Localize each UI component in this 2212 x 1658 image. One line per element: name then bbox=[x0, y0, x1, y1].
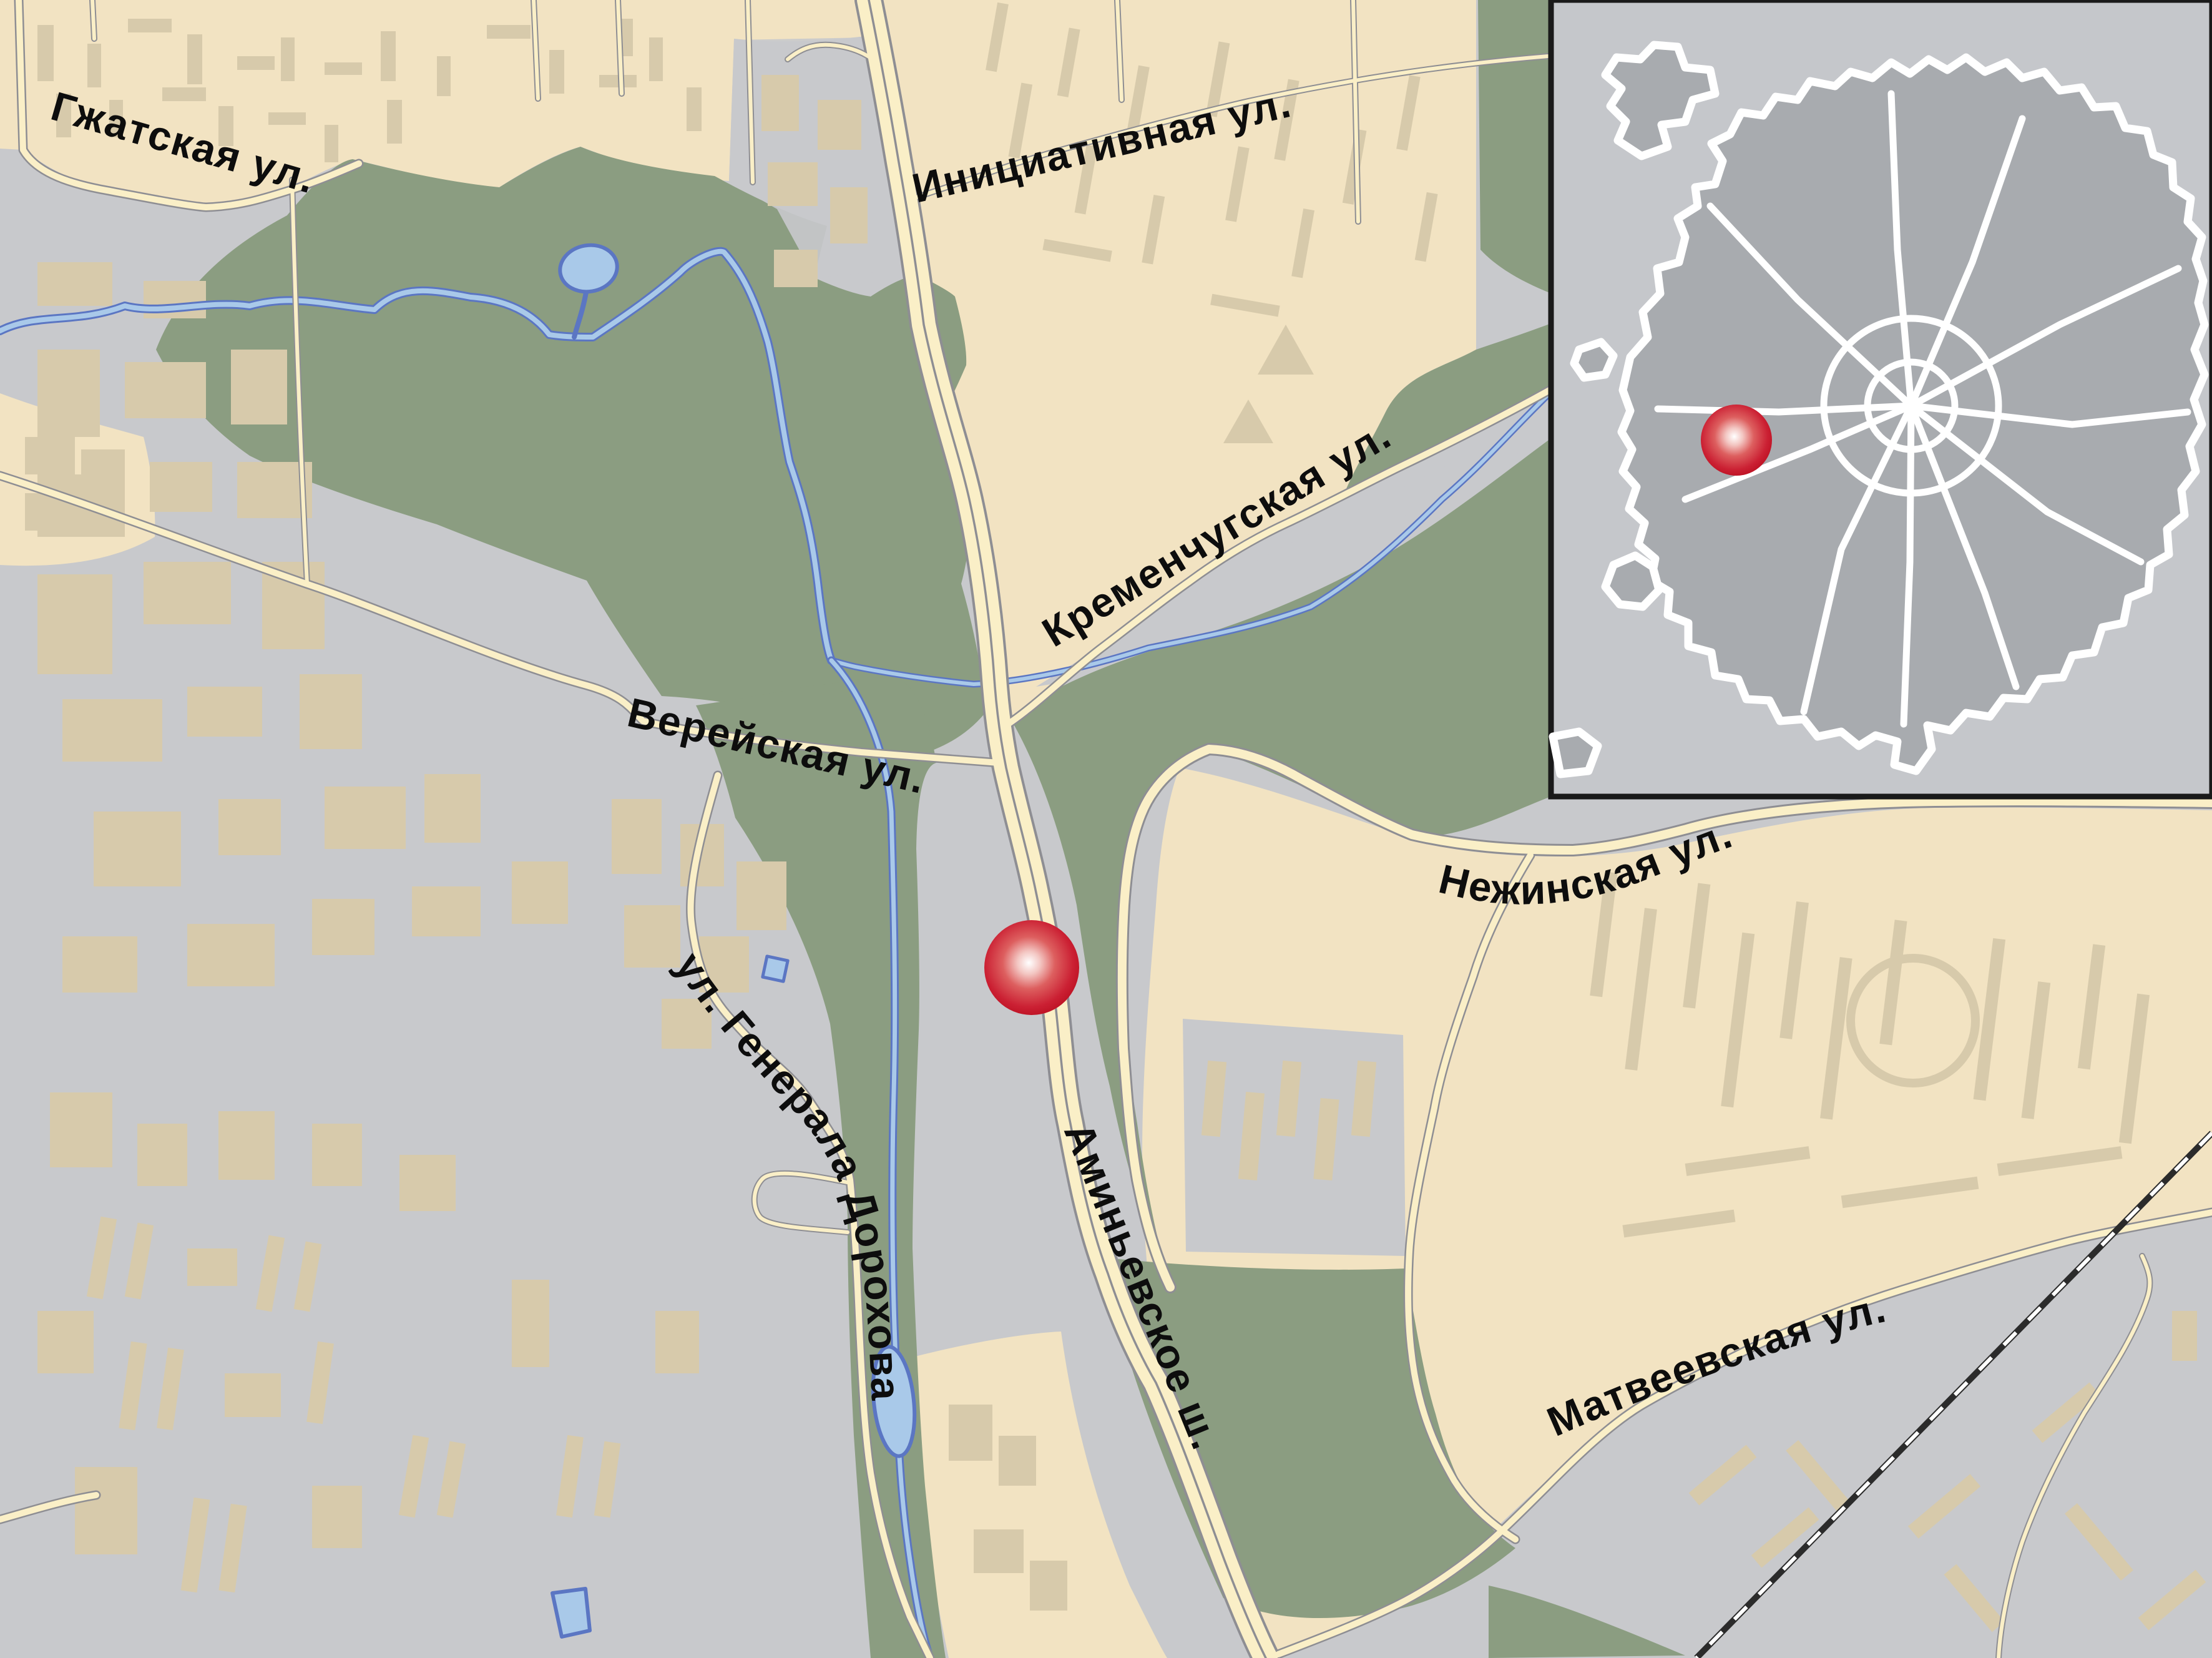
inset-location-marker[interactable] bbox=[1701, 405, 1772, 476]
map-canvas: Гжатская ул. Инициативная ул. Кременчугс… bbox=[0, 0, 2212, 1658]
street-map: Гжатская ул. Инициативная ул. Кременчугс… bbox=[0, 0, 2212, 1658]
location-marker[interactable] bbox=[984, 920, 1079, 1015]
inset-map bbox=[1551, 0, 2212, 797]
pond-small-west bbox=[763, 956, 788, 981]
